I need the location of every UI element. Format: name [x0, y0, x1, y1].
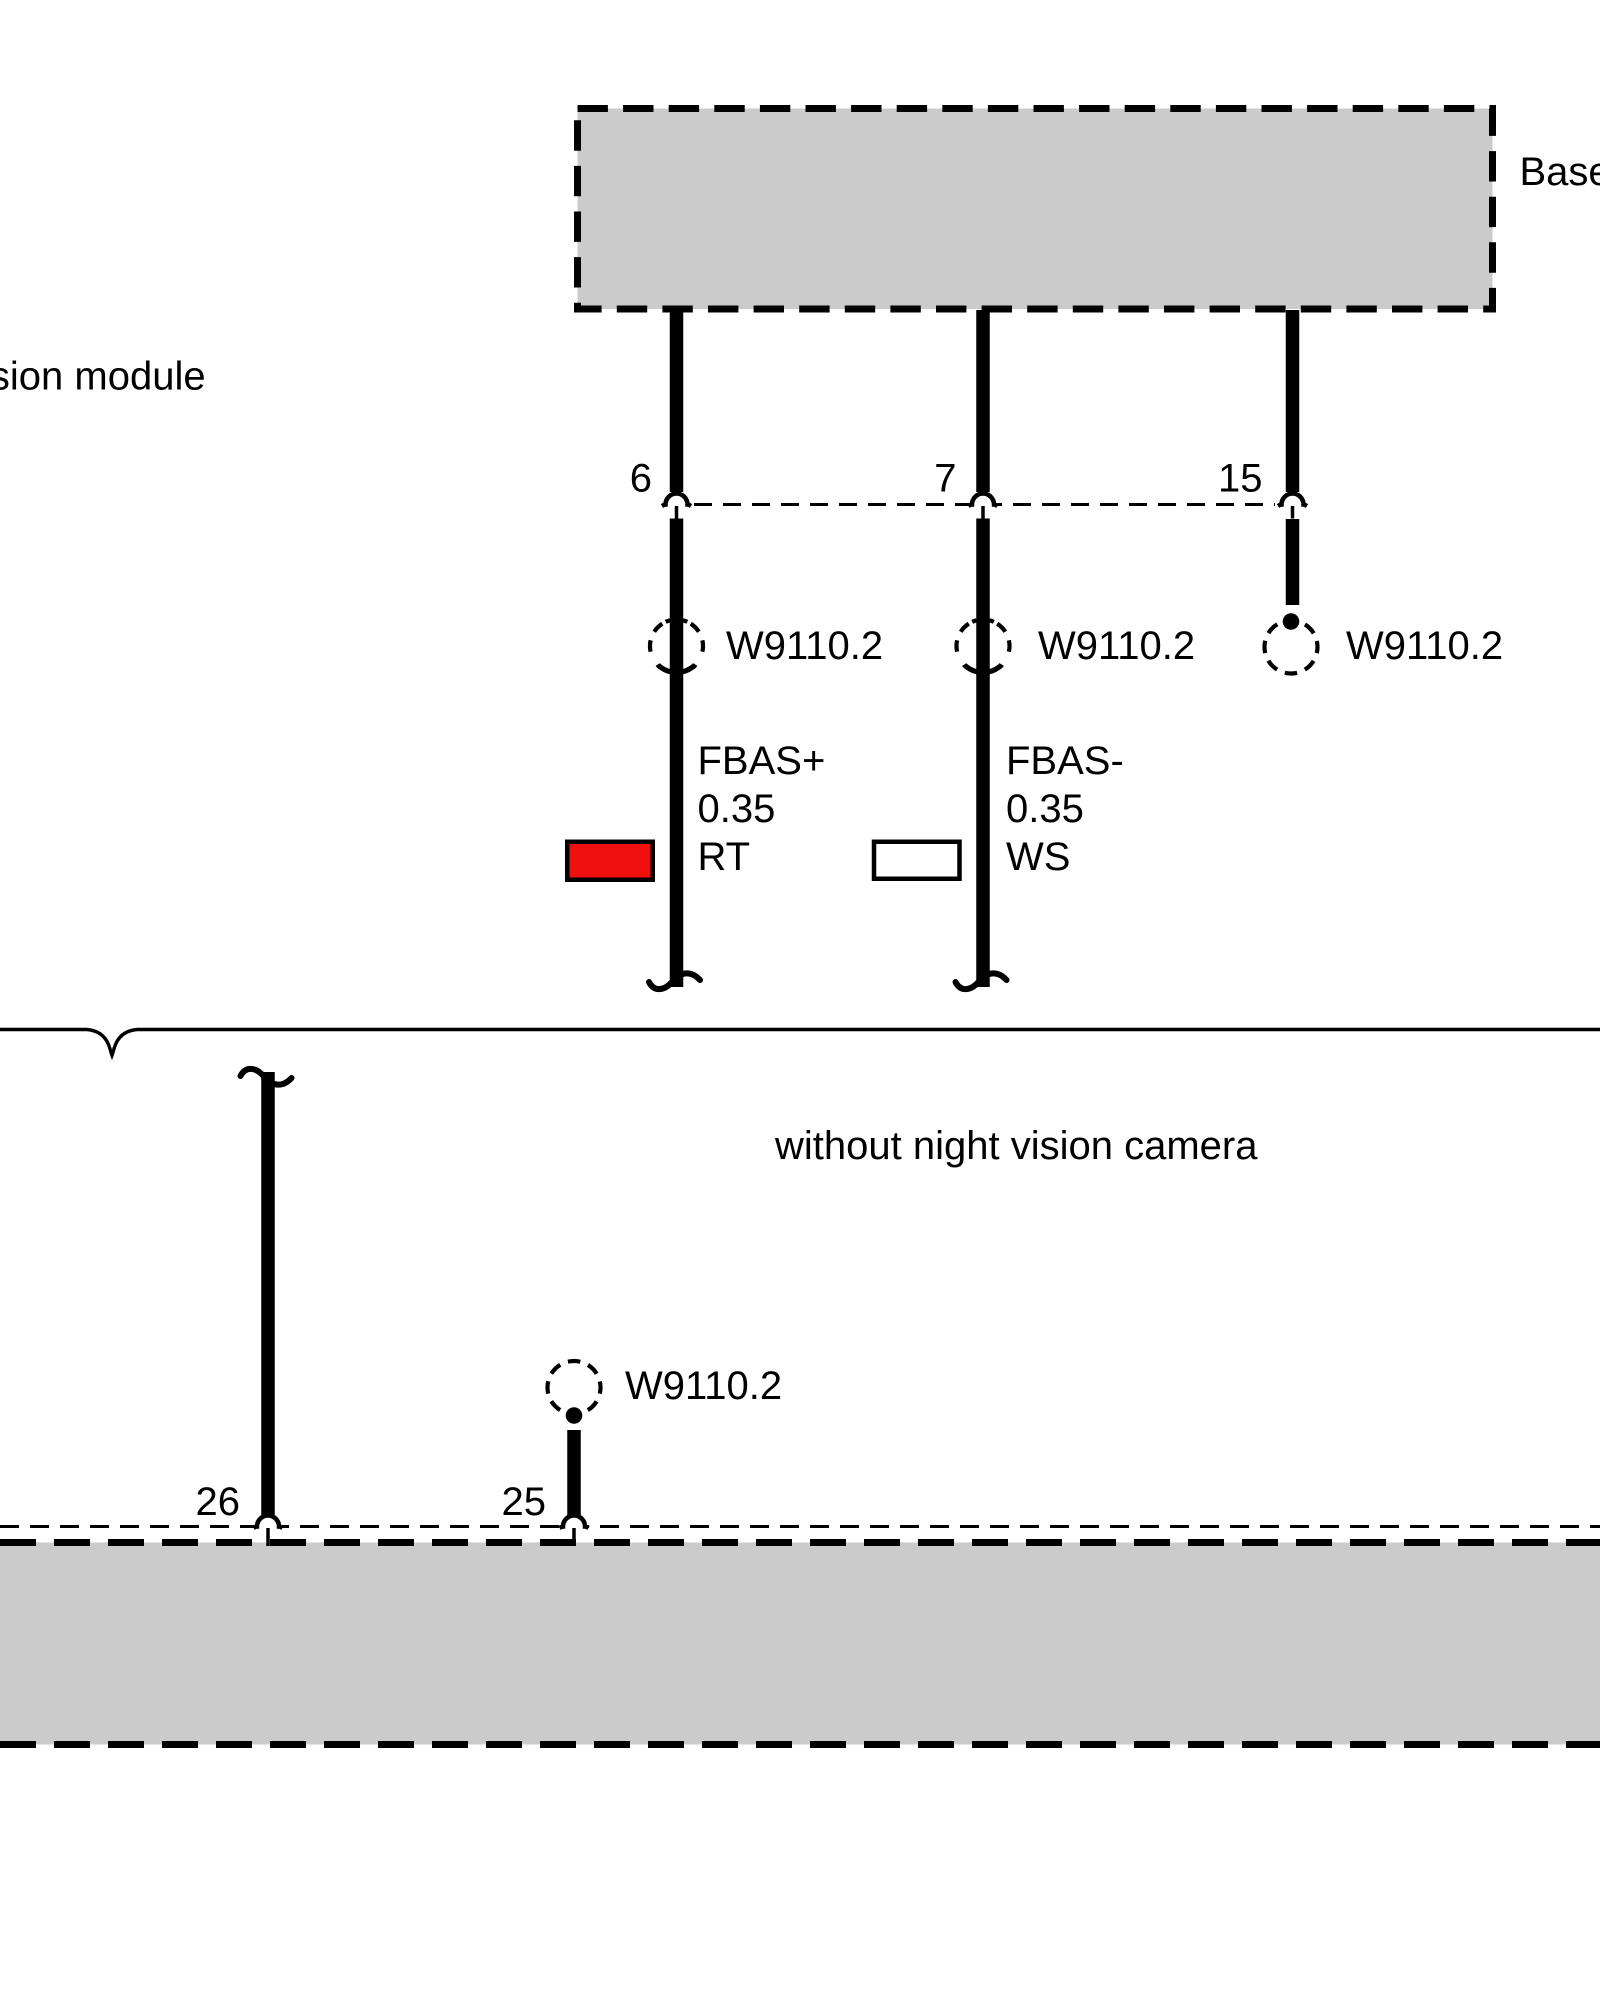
svg-text:6: 6 — [630, 457, 652, 501]
svg-text:W9110.2: W9110.2 — [1038, 624, 1195, 668]
svg-text:W9110.2: W9110.2 — [1346, 624, 1503, 668]
svg-text:Base module: Base module — [1520, 150, 1600, 194]
svg-text:26: 26 — [196, 1480, 241, 1524]
svg-text:WS: WS — [1006, 835, 1070, 879]
svg-text:FBAS-: FBAS- — [1006, 739, 1124, 783]
svg-text:15: 15 — [1218, 457, 1263, 501]
svg-text:without night vision camera: without night vision camera — [774, 1124, 1258, 1168]
svg-text:W9110.2: W9110.2 — [726, 624, 883, 668]
svg-text:25: 25 — [502, 1480, 547, 1524]
svg-text:FBAS+: FBAS+ — [698, 739, 826, 783]
svg-text:vision module: vision module — [0, 355, 206, 399]
svg-text:0.35: 0.35 — [1006, 787, 1084, 831]
svg-text:7: 7 — [934, 457, 956, 501]
svg-text:W9110.2: W9110.2 — [625, 1364, 782, 1408]
svg-text:0.35: 0.35 — [698, 787, 776, 831]
svg-text:RT: RT — [698, 835, 751, 879]
